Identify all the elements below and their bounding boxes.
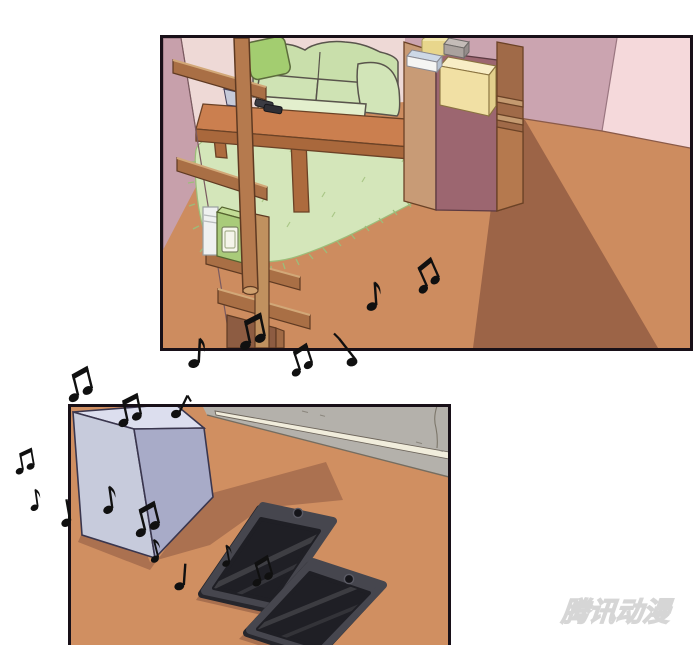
wall-corner <box>602 38 690 148</box>
phone-camera-dot <box>293 508 302 517</box>
storage-cabinet <box>404 36 523 212</box>
shelf-base-side <box>276 328 284 348</box>
music-note-icon <box>27 488 42 512</box>
tencent-comics-watermark: 腾讯动漫 <box>560 590 694 630</box>
throw-pillow <box>244 35 291 80</box>
music-note-icon <box>11 447 36 476</box>
comic-artwork <box>0 0 700 645</box>
panel-living-room <box>163 35 690 348</box>
panel-floor-closeup <box>71 404 449 645</box>
music-note-icon <box>61 366 96 405</box>
phone-camera-dot <box>344 574 353 583</box>
comic-page: 腾讯动漫 <box>0 0 700 645</box>
pole-end <box>243 287 258 295</box>
cabinet-yellow-box <box>440 57 496 116</box>
